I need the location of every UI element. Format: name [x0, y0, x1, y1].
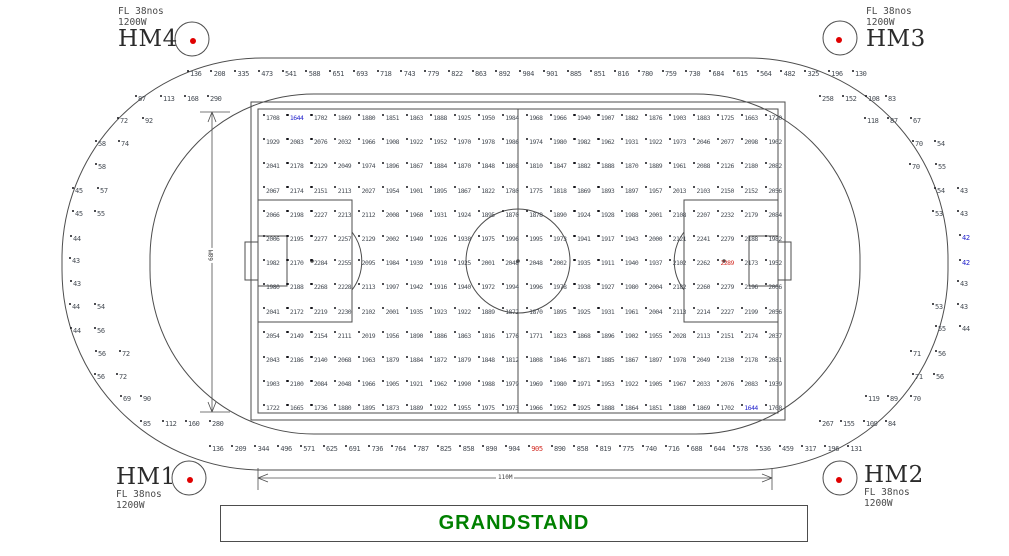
lux-value: 1974 — [362, 163, 375, 169]
lux-value: 1897 — [625, 188, 638, 194]
lux-value: 1823 — [553, 333, 566, 339]
lux-value: 43 — [960, 211, 968, 218]
lux-value: 2082 — [768, 163, 781, 169]
lux-value: 2219 — [314, 309, 327, 315]
lux-value: 2076 — [720, 381, 733, 387]
lux-value: 2149 — [290, 333, 303, 339]
lux-value: 1922 — [433, 405, 446, 411]
lux-value: 819 — [600, 446, 611, 453]
length-dimension-label: 110M — [496, 474, 514, 481]
lux-value: 1970 — [457, 139, 470, 145]
lux-value: 904 — [523, 71, 534, 78]
lux-value: 1911 — [601, 260, 614, 266]
lux-value: 736 — [372, 446, 383, 453]
lux-value: 1941 — [577, 236, 590, 242]
lux-value: 1895 — [553, 309, 566, 315]
lux-value: 2182 — [673, 284, 686, 290]
lux-value: 1997 — [386, 284, 399, 290]
lux-value: 1888 — [601, 163, 614, 169]
lux-value: 2033 — [697, 381, 710, 387]
lux-value: 2100 — [290, 381, 303, 387]
lux-value: 1901 — [410, 188, 423, 194]
lux-value: 152 — [845, 96, 856, 103]
lux-value: 1978 — [481, 139, 494, 145]
lux-value: 2043 — [266, 357, 279, 363]
lux-value: 787 — [417, 446, 428, 453]
mast-lamp-dot-hm4 — [190, 38, 196, 44]
width-dimension-label: 68M — [208, 248, 215, 263]
lux-value: 764 — [394, 446, 405, 453]
lux-value: 2111 — [338, 333, 351, 339]
lux-value: 901 — [546, 71, 557, 78]
lux-value: 131 — [850, 446, 861, 453]
lux-value: 71 — [915, 374, 923, 381]
lux-value: 1971 — [577, 381, 590, 387]
lux-value: 1725 — [720, 115, 733, 121]
lux-value: 196 — [828, 446, 839, 453]
lux-value: 716 — [668, 446, 679, 453]
lux-value: 2054 — [266, 333, 279, 339]
lux-value: 56 — [97, 374, 105, 381]
lux-value: 1931 — [433, 212, 446, 218]
lux-value: 83 — [888, 96, 896, 103]
lux-value: 87 — [890, 118, 898, 125]
mast-spec-line: 1200W — [864, 498, 924, 509]
lux-value: 2048 — [529, 260, 542, 266]
lux-value: 851 — [594, 71, 605, 78]
lux-value: 2006 — [266, 236, 279, 242]
lux-value: 904 — [508, 446, 519, 453]
lux-value: 87 — [138, 96, 146, 103]
lux-value: 473 — [261, 71, 272, 78]
lux-value: 56 — [936, 374, 944, 381]
lux-value: 2037 — [768, 333, 781, 339]
mast-spec-line: FL 38nos — [116, 489, 176, 500]
mast-spec-line: FL 38nos — [864, 487, 924, 498]
lux-value: 1870 — [625, 163, 638, 169]
lux-value: 2152 — [744, 188, 757, 194]
lux-value: 2048 — [338, 381, 351, 387]
lux-value: 2213 — [338, 212, 351, 218]
lux-value: 258 — [822, 96, 833, 103]
lux-value: 1955 — [649, 333, 662, 339]
lux-value: 1935 — [410, 309, 423, 315]
lux-value: 1980 — [553, 381, 566, 387]
width-dimension-line — [200, 112, 230, 412]
lux-value: 1888 — [433, 115, 446, 121]
lux-value: 1895 — [481, 212, 494, 218]
lux-value: 885 — [570, 71, 581, 78]
lux-value: 1644 — [744, 405, 757, 411]
lux-value: 2067 — [266, 188, 279, 194]
lux-value: 2013 — [673, 188, 686, 194]
lux-value: 2207 — [697, 212, 710, 218]
lux-value: 1869 — [338, 115, 351, 121]
lux-value: 43 — [960, 304, 968, 311]
lux-value: 53 — [935, 211, 943, 218]
lux-value: 1910 — [433, 260, 446, 266]
lux-value: 718 — [380, 71, 391, 78]
lux-value: 1903 — [673, 115, 686, 121]
lux-value: 1780 — [505, 188, 518, 194]
lux-value: 1961 — [673, 163, 686, 169]
lux-value: 1916 — [433, 284, 446, 290]
lux-value: 1864 — [625, 405, 638, 411]
lux-value: 57 — [100, 188, 108, 195]
lux-value: 2048 — [505, 260, 518, 266]
lux-value: 92 — [145, 118, 153, 125]
lux-value: 2173 — [744, 260, 757, 266]
lux-value: 43 — [73, 281, 81, 288]
lux-value: 1922 — [625, 381, 638, 387]
lux-value: 1848 — [481, 163, 494, 169]
lux-value: 2241 — [697, 236, 710, 242]
lux-value: 1663 — [744, 115, 757, 121]
lux-value: 1889 — [481, 309, 494, 315]
lux-value: 2041 — [266, 309, 279, 315]
lux-value: 1996 — [505, 236, 518, 242]
lux-value: 1980 — [266, 284, 279, 290]
lux-value: 1988 — [481, 381, 494, 387]
lux-value: 2154 — [314, 333, 327, 339]
lux-value: 69 — [123, 396, 131, 403]
lux-value: 44 — [73, 328, 81, 335]
lux-value: 2289 — [720, 260, 733, 266]
lux-value: 1720 — [768, 115, 781, 121]
mast-label-hm3: FL 38nos 1200W HM3 — [866, 6, 926, 51]
lux-value: 2130 — [720, 357, 733, 363]
lux-value: 1867 — [410, 163, 423, 169]
lux-value: 2108 — [673, 212, 686, 218]
lux-value: 1908 — [386, 139, 399, 145]
lux-value: 1972 — [481, 284, 494, 290]
lux-value: 2066 — [266, 212, 279, 218]
lux-value: 1952 — [433, 139, 446, 145]
length-dimension-line — [258, 468, 772, 490]
lux-value: 53 — [935, 304, 943, 311]
lux-value: 344 — [258, 446, 269, 453]
lux-value: 70 — [913, 396, 921, 403]
lux-value: 1990 — [457, 381, 470, 387]
lux-value: 2179 — [744, 212, 757, 218]
lux-value: 1776 — [505, 333, 518, 339]
lux-value: 2277 — [314, 236, 327, 242]
lux-value: 2188 — [744, 236, 757, 242]
lux-value: 1968 — [529, 115, 542, 121]
lux-value: 280 — [212, 421, 223, 428]
lux-value: 1937 — [649, 260, 662, 266]
lux-value: 2186 — [290, 357, 303, 363]
lux-value: 2083 — [290, 139, 303, 145]
lux-value: 267 — [822, 421, 833, 428]
lux-value: 1882 — [577, 163, 590, 169]
lux-value: 44 — [962, 326, 970, 333]
lux-value: 2032 — [338, 139, 351, 145]
grandstand-box: GRANDSTAND — [220, 505, 808, 542]
lux-value: 1966 — [362, 381, 375, 387]
lux-value: 2095 — [362, 260, 375, 266]
lux-value: 691 — [349, 446, 360, 453]
lux-value: 1867 — [625, 357, 638, 363]
lux-value: 43 — [960, 281, 968, 288]
lux-value: 1925 — [457, 260, 470, 266]
lux-value: 1867 — [457, 188, 470, 194]
mast-label-hm2: HM2 FL 38nos 1200W — [864, 464, 924, 509]
lux-value: 1812 — [505, 357, 518, 363]
lux-value: 1974 — [529, 139, 542, 145]
lux-value: 1851 — [649, 405, 662, 411]
lux-value: 1884 — [410, 357, 423, 363]
mast-label-hm1: HM1 FL 38nos 1200W — [116, 466, 176, 511]
lux-value: 2113 — [338, 188, 351, 194]
lux-value: 1879 — [386, 357, 399, 363]
lux-value: 1926 — [433, 236, 446, 242]
lux-value: 1980 — [553, 139, 566, 145]
lux-value: 2255 — [338, 260, 351, 266]
lux-value: 1922 — [649, 139, 662, 145]
lux-value: 1903 — [266, 381, 279, 387]
lux-value: 1973 — [553, 236, 566, 242]
lux-value: 1878 — [529, 212, 542, 218]
lux-value: 1851 — [386, 115, 399, 121]
lux-value: 1921 — [410, 381, 423, 387]
lux-value: 54 — [937, 188, 945, 195]
lux-value: 1870 — [457, 163, 470, 169]
lux-value: 1893 — [601, 188, 614, 194]
lux-value: 2279 — [720, 284, 733, 290]
lux-value: 1984 — [505, 115, 518, 121]
lux-value: 2230 — [338, 309, 351, 315]
lux-value: 1929 — [266, 139, 279, 145]
lux-value: 335 — [238, 71, 249, 78]
lux-value: 1907 — [601, 115, 614, 121]
lux-value: 1880 — [338, 405, 351, 411]
lux-value: 113 — [163, 96, 174, 103]
lux-value: 2098 — [744, 139, 757, 145]
lux-value: 1810 — [529, 163, 542, 169]
lux-value: 496 — [280, 446, 291, 453]
lux-value: 482 — [784, 71, 795, 78]
lux-value: 1847 — [553, 163, 566, 169]
lux-value: 1982 — [266, 260, 279, 266]
lux-value: 1816 — [481, 333, 494, 339]
lux-value: 108 — [868, 96, 879, 103]
lux-value: 1665 — [290, 405, 303, 411]
lux-value: 2081 — [768, 357, 781, 363]
lux-value: 1931 — [625, 139, 638, 145]
lux-value: 2002 — [386, 236, 399, 242]
lux-value: 1905 — [386, 381, 399, 387]
lux-value: 1702 — [314, 115, 327, 121]
lux-value: 1969 — [529, 381, 542, 387]
lux-value: 74 — [121, 141, 129, 148]
lux-value: 2151 — [720, 333, 733, 339]
lux-value: 56 — [938, 351, 946, 358]
lux-value: 564 — [760, 71, 771, 78]
lux-value: 1863 — [410, 115, 423, 121]
lux-value: 168 — [187, 96, 198, 103]
lux-value: 644 — [714, 446, 725, 453]
lux-value: 1966 — [529, 405, 542, 411]
mast-name: HM3 — [866, 28, 926, 51]
lux-value: 43 — [960, 188, 968, 195]
lux-value: 1924 — [577, 212, 590, 218]
lux-value: 1871 — [577, 357, 590, 363]
lux-value: 2180 — [744, 163, 757, 169]
lux-value: 1966 — [362, 139, 375, 145]
lux-value: 1905 — [649, 381, 662, 387]
lux-value: 890 — [486, 446, 497, 453]
lux-value: 775 — [622, 446, 633, 453]
lux-value: 2019 — [362, 333, 375, 339]
lux-value: 2214 — [697, 309, 710, 315]
lux-value: 693 — [356, 71, 367, 78]
lux-value: 1882 — [625, 115, 638, 121]
lux-value: 571 — [303, 446, 314, 453]
left-penalty-arc — [352, 232, 362, 290]
lux-value: 43 — [72, 258, 80, 265]
lux-value: 1708 — [768, 405, 781, 411]
lux-value: 72 — [122, 351, 130, 358]
lux-value: 58 — [98, 141, 106, 148]
lux-value: 72 — [120, 118, 128, 125]
lux-value: 541 — [285, 71, 296, 78]
lux-value: 2178 — [290, 163, 303, 169]
lux-value: 2174 — [744, 333, 757, 339]
lux-value: 130 — [855, 71, 866, 78]
lux-value: 1869 — [697, 405, 710, 411]
lux-value: 2076 — [314, 139, 327, 145]
lux-value: 1942 — [410, 284, 423, 290]
lux-value: 1883 — [697, 115, 710, 121]
lux-value: 1986 — [505, 139, 518, 145]
lux-value: 1956 — [386, 333, 399, 339]
lux-value: 2046 — [697, 139, 710, 145]
lux-value: 588 — [309, 71, 320, 78]
lux-value: 1897 — [649, 357, 662, 363]
lux-value: 2103 — [697, 188, 710, 194]
lux-value: 1846 — [553, 357, 566, 363]
lux-value: 1888 — [601, 405, 614, 411]
lux-value: 2001 — [481, 260, 494, 266]
lux-value: 1935 — [577, 260, 590, 266]
lux-value: 890 — [554, 446, 565, 453]
lux-value: 45 — [75, 211, 83, 218]
lux-value: 1886 — [433, 333, 446, 339]
lux-value: 2068 — [338, 357, 351, 363]
lux-value: 1939 — [768, 381, 781, 387]
lux-value: 2083 — [744, 381, 757, 387]
lux-value: 1889 — [649, 163, 662, 169]
lux-value: 1771 — [529, 333, 542, 339]
lux-value: 325 — [808, 71, 819, 78]
lux-value: 1943 — [625, 236, 638, 242]
mast-lamp-dot-hm3 — [836, 37, 842, 43]
lux-value: 1818 — [553, 188, 566, 194]
lux-value: 136 — [190, 71, 201, 78]
lux-value: 1890 — [553, 212, 566, 218]
lux-value: 196 — [831, 71, 842, 78]
lux-value: 42 — [962, 260, 970, 267]
lux-value: 780 — [641, 71, 652, 78]
lux-value: 1949 — [410, 236, 423, 242]
lux-value: 1873 — [386, 405, 399, 411]
lux-value: 1880 — [673, 405, 686, 411]
lux-value: 1925 — [577, 309, 590, 315]
lux-value: 2150 — [720, 188, 733, 194]
lux-value: 651 — [333, 71, 344, 78]
lux-value: 1922 — [457, 309, 470, 315]
lux-value: 625 — [326, 446, 337, 453]
lux-value: 858 — [463, 446, 474, 453]
lux-value: 1925 — [457, 115, 470, 121]
lux-value: 536 — [759, 446, 770, 453]
lux-value: 730 — [689, 71, 700, 78]
lux-value: 1884 — [433, 163, 446, 169]
lux-value: 1927 — [601, 284, 614, 290]
lux-value: 2084 — [768, 212, 781, 218]
lux-value: 1708 — [266, 115, 279, 121]
lux-value: 84 — [888, 421, 896, 428]
lux-value: 208 — [214, 71, 225, 78]
lux-value: 2102 — [673, 260, 686, 266]
lux-value: 44 — [72, 304, 80, 311]
lux-value: 1702 — [720, 405, 733, 411]
lux-value: 67 — [913, 118, 921, 125]
lux-value: 1961 — [625, 309, 638, 315]
lux-value: 1938 — [457, 236, 470, 242]
lux-value: 2174 — [290, 188, 303, 194]
lux-value: 740 — [645, 446, 656, 453]
lux-value: 1996 — [529, 284, 542, 290]
mast-name: HM1 — [116, 466, 176, 489]
lux-value: 2284 — [314, 260, 327, 266]
lux-value: 2279 — [720, 236, 733, 242]
lux-value: 2172 — [290, 309, 303, 315]
lux-value: 1975 — [481, 236, 494, 242]
lux-value: 1940 — [577, 115, 590, 121]
lux-value: 56 — [98, 351, 106, 358]
lux-value: 2000 — [649, 236, 662, 242]
mast-spec-line: FL 38nos — [118, 6, 178, 17]
lux-value: 1822 — [481, 188, 494, 194]
lux-value: 1808 — [529, 357, 542, 363]
lux-value: 2121 — [673, 236, 686, 242]
lux-value: 2195 — [290, 236, 303, 242]
lux-value: 55 — [938, 326, 946, 333]
lux-value: 1922 — [410, 139, 423, 145]
lux-value: 2199 — [744, 309, 757, 315]
lux-value: 2088 — [697, 163, 710, 169]
lux-value: 1895 — [362, 405, 375, 411]
lux-value: 109 — [866, 421, 877, 428]
lux-value: 1890 — [410, 333, 423, 339]
lux-value: 2268 — [314, 284, 327, 290]
lux-value: 72 — [119, 374, 127, 381]
lux-value: 858 — [577, 446, 588, 453]
lux-value: 1967 — [673, 381, 686, 387]
lux-value: 1736 — [314, 405, 327, 411]
lux-value: 2102 — [362, 309, 375, 315]
lux-value: 2151 — [314, 188, 327, 194]
lux-value: 54 — [97, 304, 105, 311]
lux-value: 1963 — [362, 357, 375, 363]
lux-value: 1902 — [625, 333, 638, 339]
lux-value: 1885 — [601, 357, 614, 363]
lux-value: 1979 — [505, 381, 518, 387]
lux-value: 779 — [428, 71, 439, 78]
lux-value: 2196 — [744, 284, 757, 290]
